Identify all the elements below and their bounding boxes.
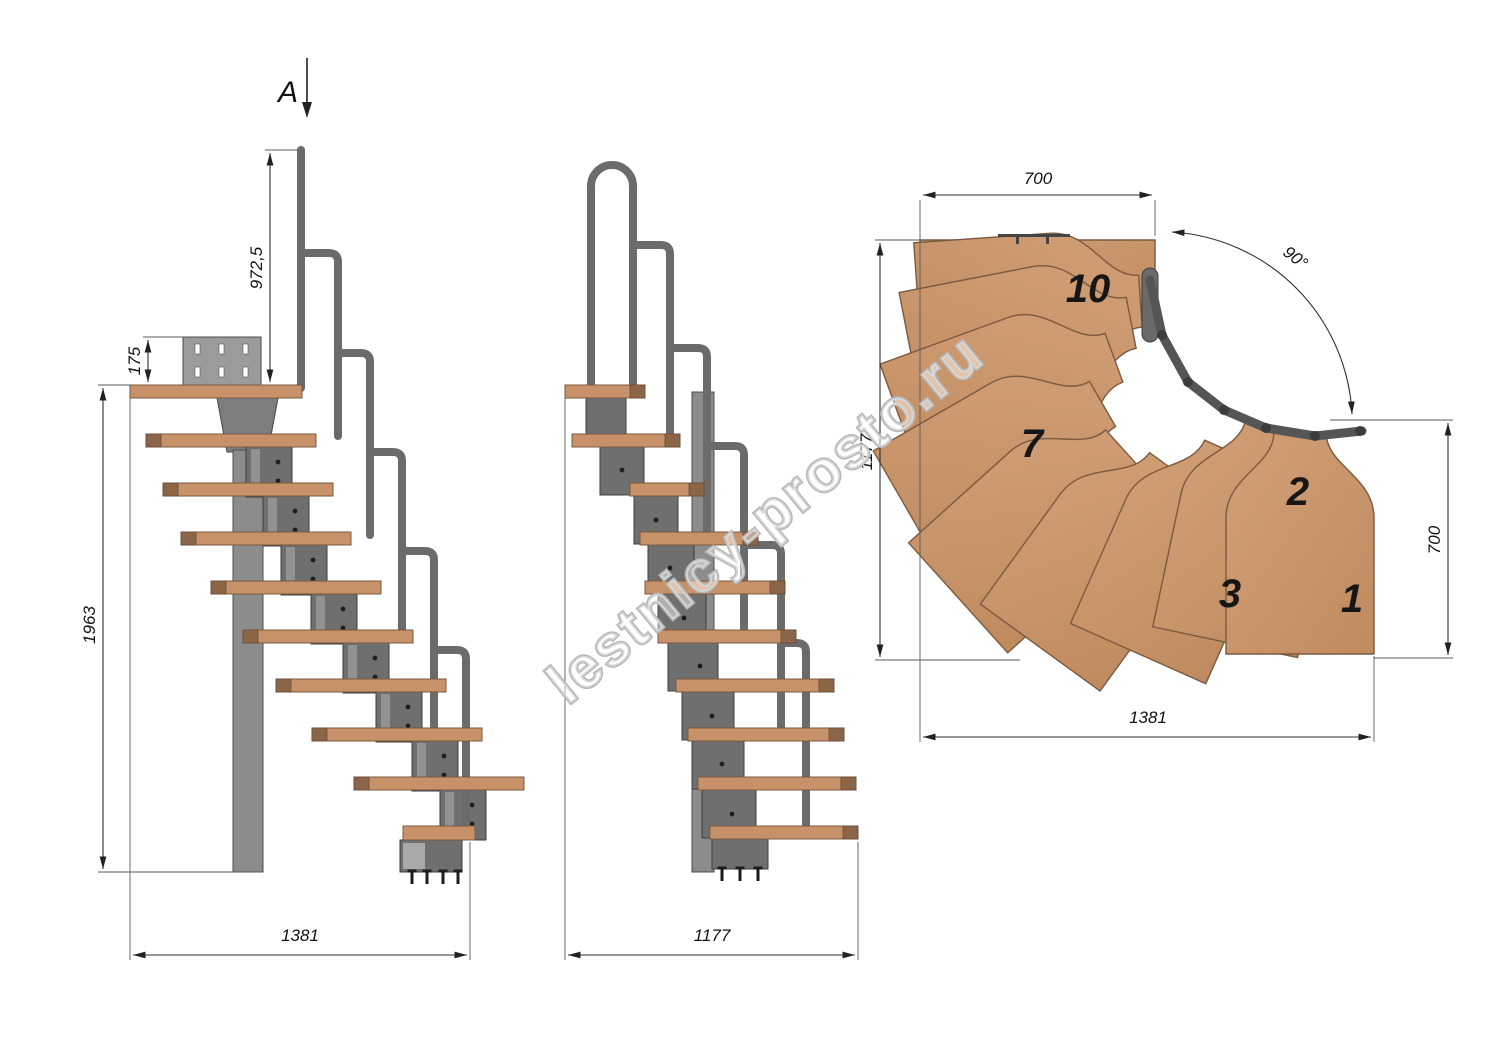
handrail-segment xyxy=(370,452,402,633)
handrail-segment xyxy=(338,353,370,535)
drawing-sheet: A xyxy=(0,0,1500,1061)
dimension-length: 1381 xyxy=(281,926,319,945)
section-arrow-head xyxy=(302,102,312,118)
handrail-loop xyxy=(591,165,633,392)
dimension-turn-angle: 90° xyxy=(1279,242,1311,273)
dimension-bottom-width: 1381 xyxy=(1129,708,1167,727)
tread xyxy=(211,581,381,594)
tread xyxy=(243,630,413,643)
anchor-bolts xyxy=(718,867,763,882)
dimension-width: 1177 xyxy=(694,926,731,945)
tread xyxy=(146,434,316,447)
handrail-segment xyxy=(305,253,338,436)
tread-number-2: 2 xyxy=(1286,470,1309,514)
support-column xyxy=(233,450,263,872)
base-module-plate xyxy=(403,843,425,869)
handrail-segment xyxy=(633,245,670,437)
tread xyxy=(181,532,351,545)
tread-number-10: 10 xyxy=(1066,267,1111,311)
handrail-curve xyxy=(1150,280,1362,436)
tread xyxy=(354,777,524,790)
dimension-rail-height: 972,5 xyxy=(247,246,266,289)
dimension-top-width: 700 xyxy=(1024,169,1053,188)
tread xyxy=(130,385,302,398)
side-elevation-view: 972,5 175 1963 1381 xyxy=(80,150,524,960)
staircase-technical-drawing: A xyxy=(0,0,1500,1061)
tread xyxy=(276,679,446,692)
section-mark: A xyxy=(276,58,312,118)
section-label: A xyxy=(276,76,298,109)
dimension-total-height: 1963 xyxy=(80,606,99,644)
dimension-right-depth: 700 xyxy=(1425,525,1444,554)
tread-number-3: 3 xyxy=(1219,572,1241,616)
plan-handrail xyxy=(1142,268,1365,441)
plan-view: 10 7 3 2 1 700 90° 1177 700 1381 xyxy=(857,169,1453,742)
plan-treads xyxy=(873,227,1374,691)
tread xyxy=(163,483,333,496)
tread-number-1: 1 xyxy=(1341,577,1363,621)
tread-number-7: 7 xyxy=(1021,422,1045,466)
tread xyxy=(312,728,482,741)
dimension-plate-height: 175 xyxy=(125,346,144,375)
tread xyxy=(403,826,475,840)
